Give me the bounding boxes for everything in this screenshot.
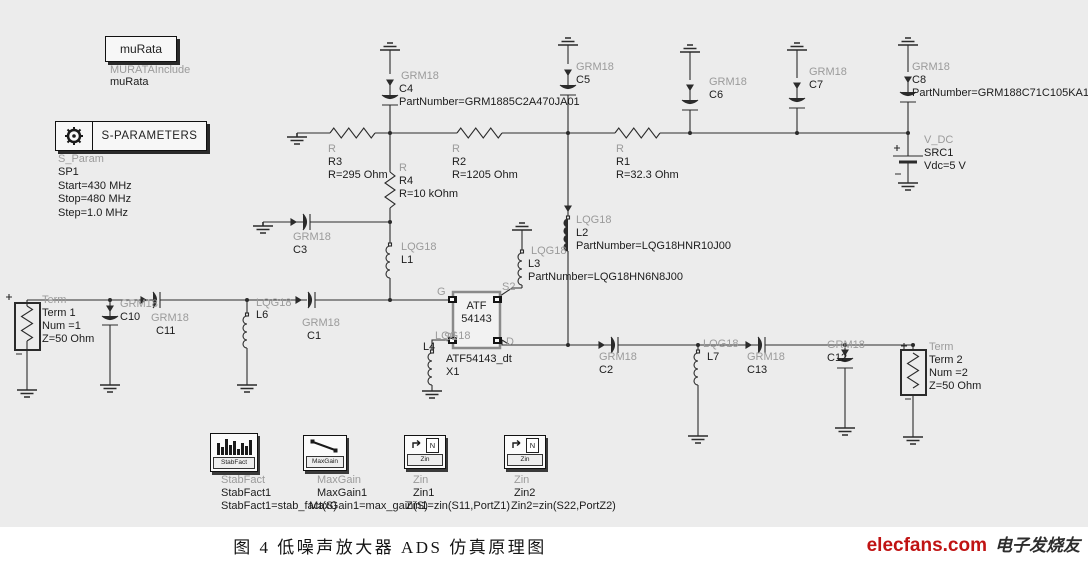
zin1-block: N Zin: [404, 435, 446, 469]
term2-type-label: Term: [929, 341, 953, 354]
l1-value-label: L1: [401, 254, 413, 267]
maxgain-icon-label: MaxGain: [306, 456, 344, 468]
l7-value-label: L7: [707, 351, 719, 364]
zin2-icon-letter: N: [526, 438, 539, 453]
c12-value-label: C12: [827, 352, 847, 365]
murata-title: muRata: [120, 42, 162, 56]
stabfact-block: StabFact: [210, 433, 258, 472]
zin2-type-label: Zin: [514, 474, 529, 487]
zin1-type-label: Zin: [413, 474, 428, 487]
l3-value-label: L3 PartNumber=LQG18HN6N8J00: [528, 258, 683, 283]
c11-value-label: C11: [156, 325, 175, 338]
term2-symbol: [901, 343, 926, 399]
s-parameters-icon: [56, 122, 93, 150]
inductor-l6-symbol: [243, 313, 249, 348]
l3-type-label: LQG18: [531, 245, 566, 258]
transistor-pin-s2: S2: [502, 281, 515, 294]
resistor-r3-symbol: [330, 128, 375, 138]
zin1-name-label: Zin1: [413, 487, 434, 500]
zin2-icon: N: [505, 436, 545, 454]
c4-type-label: GRM18: [401, 70, 439, 83]
c11-type-label: GRM18: [151, 312, 189, 325]
murata-include-type: MURATAInclude: [110, 64, 190, 77]
c3-value-label: C3: [293, 244, 307, 257]
s-parameters-title: S-PARAMETERS: [93, 130, 206, 142]
transistor-instance-label: ATF54143_dt X1: [446, 353, 512, 378]
schematic-figure: muRata MURATAInclude muRata S-PARAMETERS…: [0, 0, 1088, 564]
l4-value-label: L4: [423, 341, 435, 354]
murata-include-block: muRata: [105, 36, 177, 62]
zin2-icon-label: Zin: [507, 454, 543, 466]
inductor-l1-symbol: [386, 243, 392, 278]
maxgain-icon: [304, 436, 346, 456]
r2-value-label: R2 R=1205 Ohm: [452, 156, 518, 181]
term2-value-label: Term 2 Num =2 Z=50 Ohm: [929, 354, 981, 393]
l6-type-label: LQG18: [256, 297, 291, 310]
c13-value-label: C13: [747, 364, 767, 377]
c10-value-label: C10: [120, 311, 140, 324]
r1-value-label: R1 R=32.3 Ohm: [616, 156, 679, 181]
r4-value-label: R4 R=10 kOhm: [399, 175, 458, 200]
c5-type-label: GRM18: [576, 61, 614, 74]
l2-type-label: LQG18: [576, 214, 611, 227]
resistor-r2-symbol: [457, 128, 502, 138]
inductor-l3-symbol: [518, 250, 524, 285]
l7-type-label: LQG18: [703, 338, 738, 351]
sparams-details: SP1 Start=430 MHz Stop=480 MHz Step=1.0 …: [58, 166, 132, 220]
zin1-equation: Zin1=zin(S11,PortZ1): [406, 500, 510, 513]
murata-include-name: muRata: [110, 76, 149, 89]
c8-type-label: GRM18: [912, 61, 950, 74]
watermark-cn-name: 电子发烧友: [995, 536, 1080, 555]
zin1-icon-letter: N: [426, 438, 439, 453]
c8-value-label: C8 PartNumber=GRM188C71C105KA12: [912, 74, 1088, 99]
watermark: elecfans.com电子发烧友: [867, 531, 1080, 557]
term1-value-label: Term 1 Num =1 Z=50 Ohm: [42, 307, 94, 346]
stabfact-icon: [211, 434, 257, 457]
maxgain-name-label: MaxGain1: [317, 487, 367, 500]
l6-value-label: L6: [256, 309, 268, 322]
inductor-l4-symbol: [428, 350, 434, 385]
r2-type-label: R: [452, 143, 460, 156]
c7-type-label: GRM18: [809, 66, 847, 79]
c3-type-label: GRM18: [293, 231, 331, 244]
c5-value-label: C5: [576, 74, 590, 87]
c7-value-label: C7: [809, 79, 823, 92]
c13-type-label: GRM18: [747, 351, 785, 364]
l2-value-label: L2 PartNumber=LQG18HNR10J00: [576, 227, 731, 252]
c2-value-label: C2: [599, 364, 613, 377]
r3-type-label: R: [328, 143, 336, 156]
vdc-type-label: V_DC: [924, 134, 953, 147]
maxgain-block: MaxGain: [303, 435, 347, 471]
stabfact-type-label: StabFact: [221, 474, 265, 487]
vdc-value-label: SRC1 Vdc=5 V: [924, 147, 966, 172]
term1-type-label: Term: [42, 294, 66, 307]
l1-type-label: LQG18: [401, 241, 436, 254]
c1-type-label: GRM18: [302, 317, 340, 330]
r4-type-label: R: [399, 162, 407, 175]
sparams-type: S_Param: [58, 153, 104, 166]
term1-symbol: [6, 294, 40, 354]
zin1-icon-label: Zin: [407, 454, 443, 466]
stabfact-name-label: StabFact1: [221, 487, 271, 500]
c6-value-label: C6: [709, 89, 723, 102]
c10-type-label: GRM18: [120, 298, 158, 311]
maxgain-type-label: MaxGain: [317, 474, 361, 487]
transistor-part-label: ATF 54143: [453, 300, 500, 326]
c2-type-label: GRM18: [599, 351, 637, 364]
r3-value-label: R3 R=295 Ohm: [328, 156, 388, 181]
transistor-pin-g: G: [437, 286, 446, 299]
resistor-r1-symbol: [615, 128, 660, 138]
stabfact-icon-label: StabFact: [213, 457, 255, 469]
watermark-brand: elecfans.com: [867, 535, 987, 556]
c1-value-label: C1: [307, 330, 321, 343]
transistor-pin-s1: S1: [444, 331, 457, 344]
inductor-l7-symbol: [694, 350, 700, 385]
c12-type-label: GRM18: [827, 339, 865, 352]
r1-type-label: R: [616, 143, 624, 156]
zin2-equation: Zin2=zin(S22,PortZ2): [511, 500, 616, 513]
s-parameters-block: S-PARAMETERS: [55, 121, 207, 151]
figure-caption: 图 4 低噪声放大器 ADS 仿真原理图: [0, 533, 780, 558]
zin2-name-label: Zin2: [514, 487, 535, 500]
c6-type-label: GRM18: [709, 76, 747, 89]
c4-value-label: C4 PartNumber=GRM1885C2A470JA01: [399, 83, 580, 108]
zin1-icon: N: [405, 436, 445, 454]
zin2-block: N Zin: [504, 435, 546, 469]
transistor-pin-d: D: [506, 336, 514, 349]
